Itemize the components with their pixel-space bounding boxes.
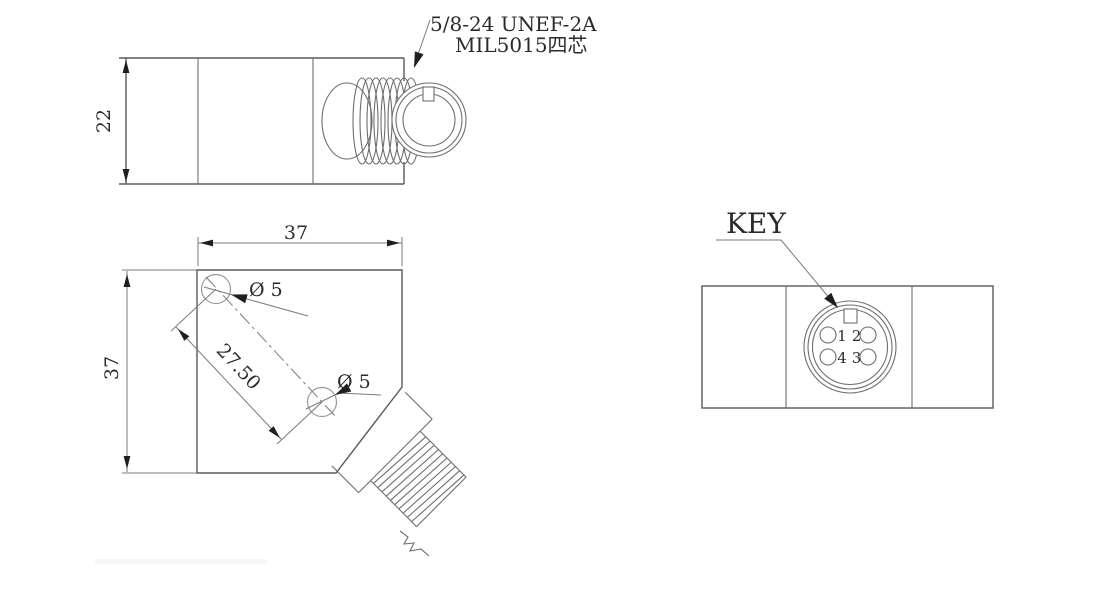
faint-watermark — [95, 559, 267, 564]
thread-note-line2: MIL5015四芯 — [455, 33, 588, 57]
hole2-leader-inner — [306, 393, 339, 409]
drawing-svg: 22 5/8-24 UNEF-2A MIL5015四芯 — [0, 0, 1118, 591]
connector-key-slot — [423, 87, 434, 101]
connector-face-view: 1 2 4 3 KEY — [702, 207, 993, 408]
top-connector-thread-lines — [373, 434, 464, 525]
dim-22-arrow-bottom — [123, 169, 130, 182]
face-body-outline — [702, 286, 993, 408]
thread-note-arrow — [410, 51, 424, 69]
dim-37w-arrow-left — [200, 240, 213, 247]
engineering-drawing-canvas: 22 5/8-24 UNEF-2A MIL5015四芯 — [0, 0, 1118, 591]
pin-circle-4 — [820, 349, 836, 365]
pin-label-4: 4 — [837, 349, 847, 367]
hole1-dia-text: Ø 5 — [249, 279, 283, 301]
dim-37w-text: 37 — [284, 222, 308, 244]
hole2-dia-text: Ø 5 — [337, 371, 371, 393]
face-key-notch — [844, 309, 857, 323]
connector-flange — [322, 83, 372, 159]
pin-label-2: 2 — [852, 327, 862, 345]
side-view: 22 5/8-24 UNEF-2A MIL5015四芯 — [93, 12, 597, 184]
dim-37h-arrow-bottom — [124, 456, 131, 469]
dim-37h-text: 37 — [101, 356, 123, 380]
hole2-leader-shoulder — [339, 393, 381, 395]
top-connector — [332, 392, 478, 538]
pin-circle-3 — [860, 349, 876, 365]
face-pins: 1 2 4 3 — [820, 327, 876, 367]
pin-label-1: 1 — [837, 327, 847, 345]
cable-break-squiggle — [400, 531, 429, 556]
dim-37w-arrow-right — [387, 240, 400, 247]
key-label: KEY — [726, 207, 786, 240]
dim-2750-text: 27.50 — [212, 340, 265, 395]
dim-22-arrow-top — [123, 60, 130, 73]
dim-2750-ext-2 — [277, 402, 322, 444]
top-view: 37 37 27.50 Ø 5 Ø 5 — [101, 222, 478, 556]
dim-22-text: 22 — [93, 109, 115, 133]
pin-label-3: 3 — [852, 349, 862, 367]
dim-2750-ext-1 — [171, 289, 216, 331]
dim-37h-arrow-top — [124, 274, 131, 287]
pin-circle-1 — [820, 327, 836, 343]
pin-circle-2 — [860, 327, 876, 343]
hole1-leader-arrow — [230, 290, 248, 303]
